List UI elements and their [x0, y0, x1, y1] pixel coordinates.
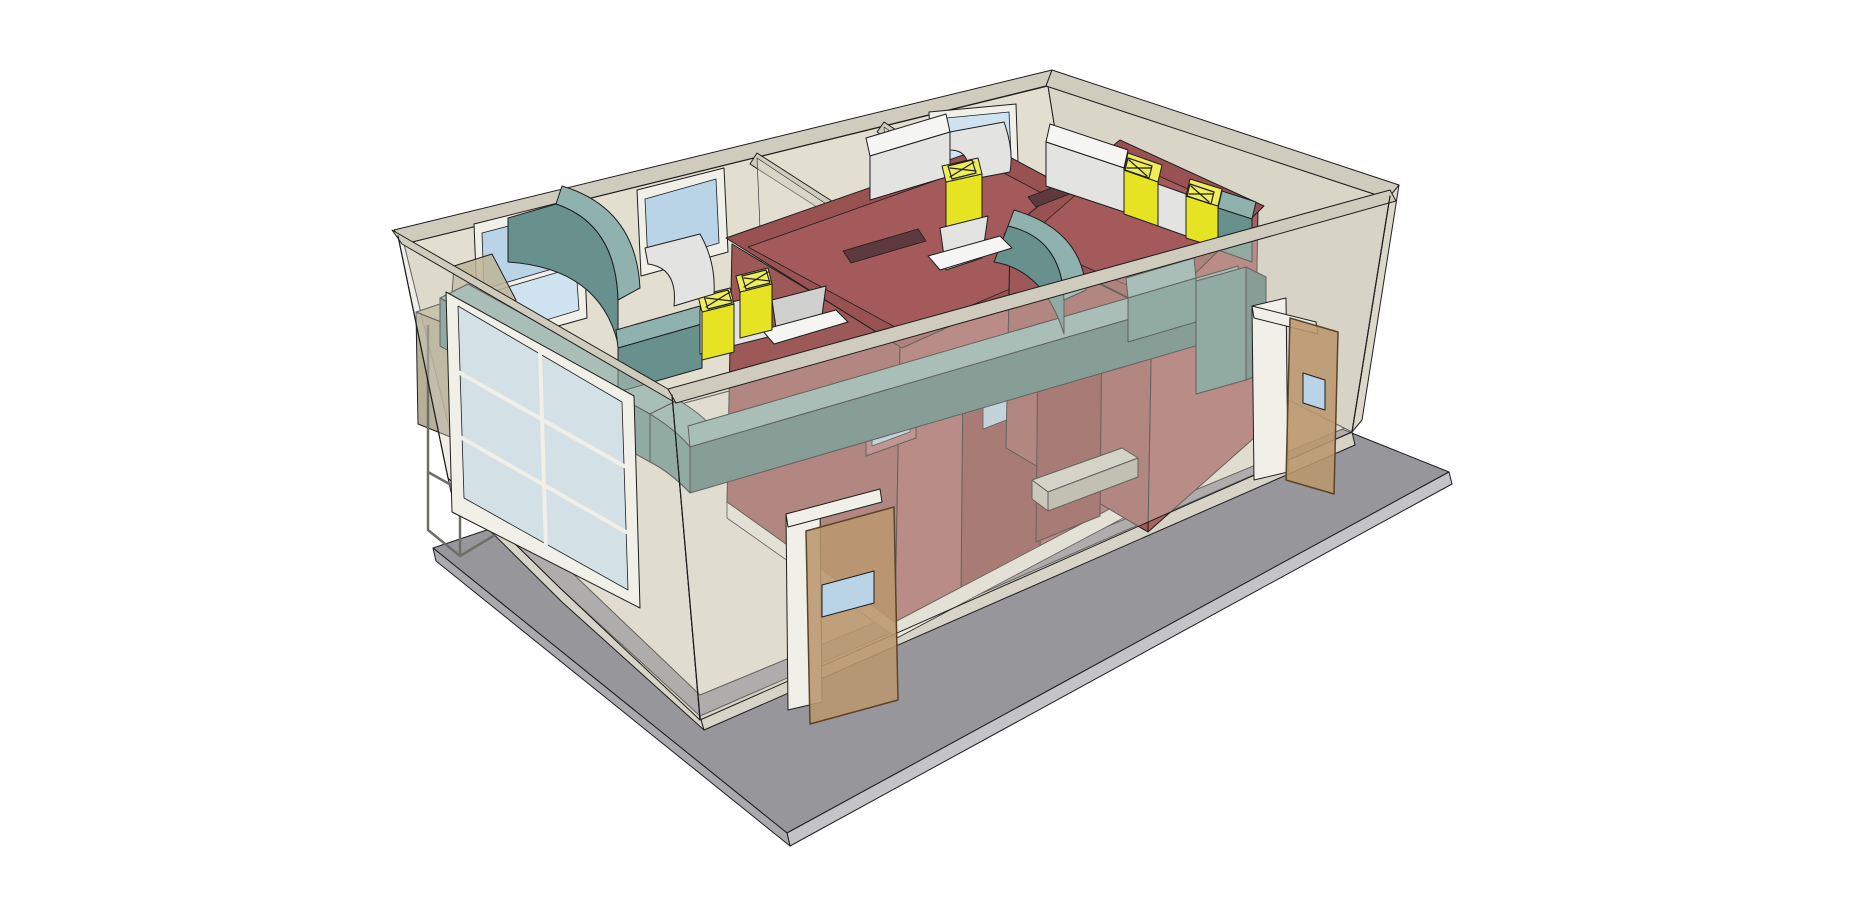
front-door-panel	[806, 507, 898, 724]
building-hvac-model	[0, 0, 1852, 915]
right-door-window	[1303, 373, 1325, 410]
cad-3d-viewport[interactable]	[0, 0, 1852, 915]
damper-b2-face	[702, 304, 734, 360]
damper-b1-face	[740, 284, 772, 338]
